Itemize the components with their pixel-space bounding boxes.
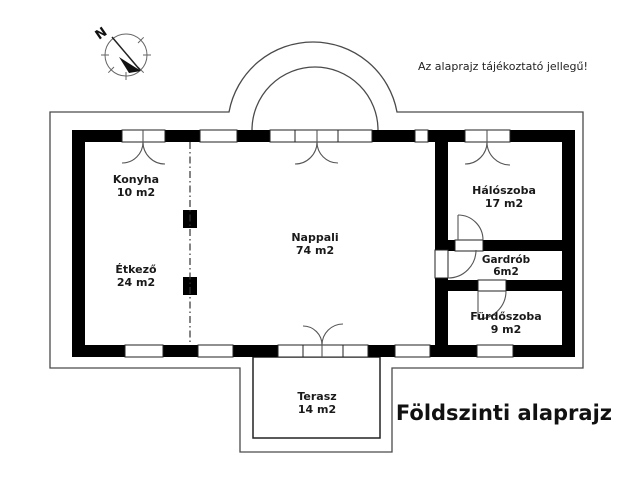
door-arc-icon xyxy=(322,324,343,345)
page-title: Földszinti alaprajz xyxy=(396,401,612,425)
wall xyxy=(233,345,278,357)
room-area: 17 m2 xyxy=(472,197,536,210)
wardrobe-door-opening xyxy=(435,250,448,278)
room-label-haloszoba: Hálószoba 17 m2 xyxy=(472,184,536,210)
wall xyxy=(165,130,200,142)
disclaimer-note: Az alaprajz tájékoztató jellegű! xyxy=(418,60,588,73)
wall xyxy=(72,345,125,357)
wall xyxy=(513,345,575,357)
window xyxy=(343,345,368,357)
room-area: 10 m2 xyxy=(113,186,159,199)
door-arc-icon xyxy=(465,142,487,164)
room-name: Terasz xyxy=(297,390,336,403)
room-name: Étkező xyxy=(115,263,156,276)
door-arc-icon xyxy=(487,142,510,165)
floorplan-page: { "meta": { "disclaimer": "Az alaprajz t… xyxy=(0,0,640,480)
wall xyxy=(430,345,477,357)
wall xyxy=(483,240,562,251)
porch-arch-icon xyxy=(252,67,378,130)
window xyxy=(338,130,372,142)
room-name: Hálószoba xyxy=(472,184,536,197)
window xyxy=(395,345,430,357)
door-arc-icon xyxy=(317,142,338,163)
window xyxy=(278,345,303,357)
door-arc-icon xyxy=(448,250,476,278)
room-name: Gardrób xyxy=(482,254,530,266)
wall xyxy=(237,130,270,142)
room-label-gardrob: Gardrób 6m2 xyxy=(482,254,530,278)
room-label-furdoszoba: Fürdőszoba 9 m2 xyxy=(470,310,541,336)
room-area: 74 m2 xyxy=(291,244,338,257)
bathroom-door-opening xyxy=(478,280,506,291)
door-arc-icon xyxy=(122,142,143,163)
wall xyxy=(448,280,478,291)
wall xyxy=(72,142,85,345)
room-label-terasz: Terasz 14 m2 xyxy=(297,390,336,416)
wall xyxy=(448,240,455,251)
bedroom-door-opening xyxy=(455,240,483,251)
room-label-konyha: Konyha 10 m2 xyxy=(113,173,159,199)
window xyxy=(125,345,163,357)
door-arc-icon xyxy=(143,142,165,164)
compass-needle-tail xyxy=(119,57,141,73)
terrace-door-opening xyxy=(303,345,343,357)
room-label-etkezo: Étkező 24 m2 xyxy=(115,263,156,289)
room-name: Fürdőszoba xyxy=(470,310,541,323)
wall xyxy=(428,130,465,142)
room-area: 6m2 xyxy=(482,266,530,278)
window xyxy=(270,130,295,142)
room-name: Konyha xyxy=(113,173,159,186)
window xyxy=(415,130,428,142)
door-arc-icon xyxy=(295,142,317,164)
north-compass-icon: N xyxy=(93,25,151,80)
wall xyxy=(72,130,122,142)
room-area: 9 m2 xyxy=(470,323,541,336)
wall xyxy=(163,345,198,357)
wall xyxy=(435,278,448,345)
room-area: 14 m2 xyxy=(297,403,336,416)
door-arc-icon xyxy=(458,215,483,240)
wall xyxy=(506,280,562,291)
door-arc-icon xyxy=(303,326,322,345)
wall xyxy=(435,142,448,250)
window xyxy=(477,345,513,357)
room-area: 24 m2 xyxy=(115,276,156,289)
room-label-nappali: Nappali 74 m2 xyxy=(291,231,338,257)
window xyxy=(200,130,237,142)
compass-north-label: N xyxy=(93,25,111,44)
wall xyxy=(562,142,575,345)
wall xyxy=(372,130,415,142)
wall xyxy=(368,345,395,357)
room-name: Nappali xyxy=(291,231,338,244)
wall xyxy=(510,130,575,142)
window xyxy=(198,345,233,357)
